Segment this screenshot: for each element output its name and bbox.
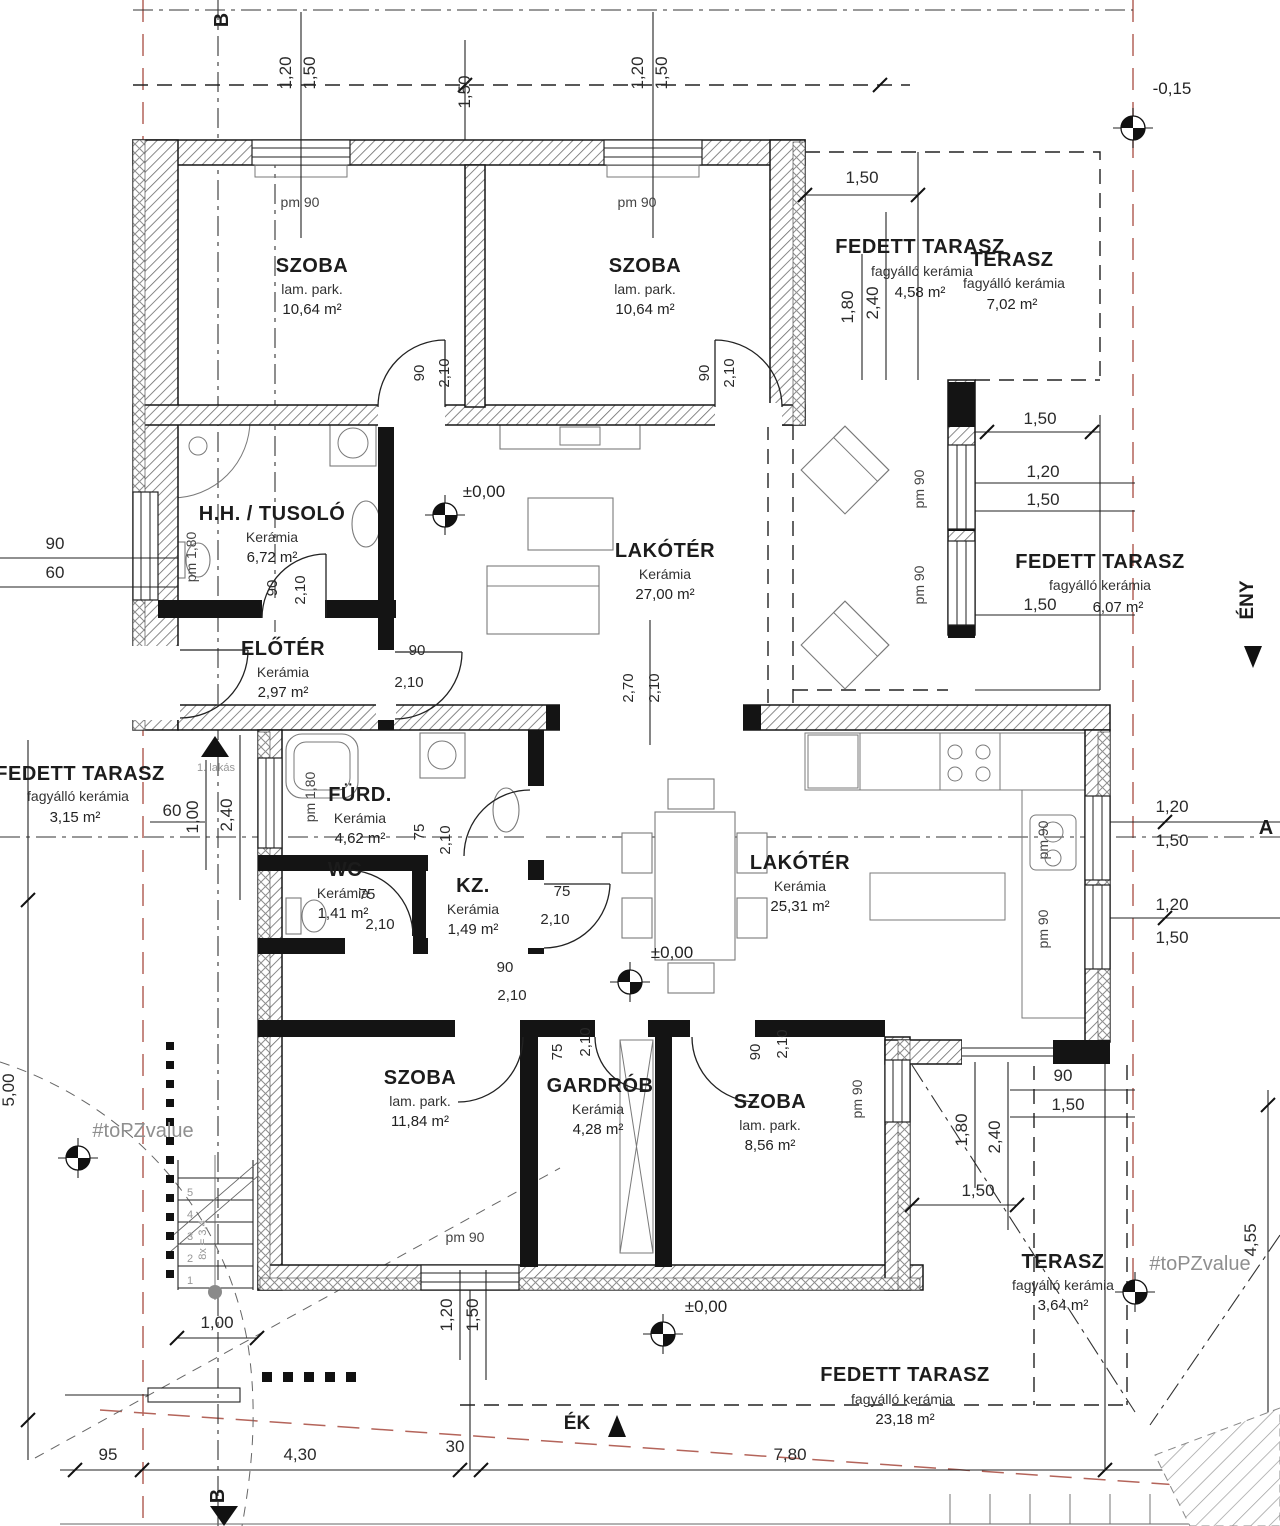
room-material: lam. park.	[281, 281, 342, 297]
room-name: GARDRÓB	[547, 1073, 654, 1097]
window	[258, 758, 282, 848]
survey-marker-left	[58, 1138, 98, 1178]
chair	[622, 898, 652, 938]
room-material: Kerámia	[334, 810, 386, 826]
sofa	[487, 566, 599, 634]
level-text: ±0,00	[651, 943, 693, 962]
stairs: 5 4 3 2 1 8x = 3,4	[65, 1042, 356, 1402]
armchair-2	[801, 601, 889, 689]
dim: 1,50	[1051, 1095, 1084, 1114]
door-dim: 2,10	[365, 916, 394, 933]
room-name: SZOBA	[384, 1067, 457, 1089]
coffee-table	[528, 498, 613, 550]
room-name: WC	[328, 859, 362, 881]
room-name: SZOBA	[276, 255, 349, 277]
room-label-furdo: FÜRD. Kerámia 4,62 m²	[328, 783, 392, 847]
stair-step: 5	[187, 1187, 193, 1199]
wall-bedroom-bottom	[133, 405, 805, 425]
room-area: 25,31 m²	[770, 898, 829, 915]
counter-divisions	[860, 733, 1000, 790]
hob-burner	[976, 745, 990, 759]
door-dim: 90	[411, 365, 428, 382]
watermark-left: #toPZvalue	[92, 1120, 193, 1142]
room-area: 23,18 m²	[875, 1411, 934, 1428]
door-dim: 90	[497, 959, 514, 976]
room-material: lam. park.	[614, 281, 675, 297]
room-label-szoba-1: SZOBA lam. park. 10,64 m²	[276, 255, 349, 318]
window	[1085, 796, 1110, 880]
level-marker-zero-3: ±0,00	[643, 1297, 727, 1354]
room-area: 27,00 m²	[635, 586, 694, 603]
insulation	[260, 1278, 920, 1290]
floor-plan-canvas: 5 4 3 2 1 8x = 3,4	[0, 0, 1280, 1526]
door-dim: 2,10	[540, 911, 569, 928]
door-dim: 90	[264, 580, 281, 597]
chair	[737, 898, 767, 938]
room-label-eloter: ELŐTÉR Kerámia 2,97 m²	[241, 637, 325, 701]
room-name: H.H. / TUSOLÓ	[199, 501, 346, 525]
wardrobe-x	[620, 1040, 653, 1253]
room-material: fagyálló kerámia	[851, 1391, 953, 1407]
level-text: ±0,00	[463, 482, 505, 501]
dim: 60	[163, 801, 182, 820]
door-dim: 75	[411, 824, 428, 841]
wall-bedroom-divider	[465, 165, 485, 407]
compass-ek-label: ÉK	[564, 1412, 591, 1434]
dining-table	[655, 812, 735, 960]
stair-step: 3	[187, 1231, 193, 1243]
room-area: 7,02 m²	[987, 296, 1038, 313]
watermark-right: #toPZvalue	[1149, 1253, 1250, 1275]
dim: 60	[46, 563, 65, 582]
fridge	[808, 735, 858, 788]
room-material: Kerámia	[447, 901, 499, 917]
dim: 1,50	[463, 1298, 482, 1331]
dim: 2,40	[985, 1120, 1004, 1153]
room-label-gardrob: GARDRÓB Kerámia 4,28 m²	[547, 1073, 654, 1138]
dim: 1,80	[838, 290, 857, 323]
section-b-arrow	[210, 1506, 238, 1526]
washer-2	[420, 733, 465, 778]
sill-label: pm 90	[1035, 909, 1051, 948]
washer	[330, 420, 376, 466]
room-material: fagyálló kerámia	[1049, 577, 1151, 593]
dim: 1,50	[1023, 595, 1056, 614]
door-dim: 90	[696, 365, 713, 382]
entrance-arrow-icon	[201, 736, 229, 757]
door-dim: 2,10	[292, 575, 309, 604]
window	[885, 1060, 910, 1122]
room-material: fagyálló kerámia	[27, 788, 129, 804]
dim: 1,00	[200, 1313, 233, 1332]
wall-top	[133, 140, 805, 165]
door-dim: 90	[747, 1044, 764, 1061]
room-area: 4,58 m²	[895, 284, 946, 301]
door-dim: 2,70	[620, 673, 637, 702]
dim: 95	[99, 1445, 118, 1464]
room-label-fedett-tarasz-bottom: FEDETT TARASZ fagyálló kerámia 23,18 m²	[820, 1364, 989, 1428]
stair-start-dot	[208, 1285, 222, 1299]
dim: 1,50	[652, 56, 671, 89]
room-label-terasz-bottom: TERASZ fagyálló kerámia 3,64 m²	[1012, 1251, 1114, 1314]
room-material: lam. park.	[389, 1093, 450, 1109]
chair	[668, 779, 714, 809]
hob-burner	[976, 767, 990, 781]
window	[421, 1265, 519, 1290]
room-name: ELŐTÉR	[241, 637, 325, 660]
dim: 90	[46, 534, 65, 553]
stair-step: 1	[187, 1275, 193, 1287]
dim-line	[912, 1062, 1135, 1230]
dim: 1,20	[437, 1298, 456, 1331]
sill-label: pm 90	[911, 565, 927, 604]
dim: 2,40	[863, 286, 882, 319]
room-material: fagyálló kerámia	[871, 263, 973, 279]
door-dim: 2,10	[437, 825, 454, 854]
sill-label: pm 90	[849, 1079, 865, 1118]
room-material: Kerámia	[572, 1101, 624, 1117]
partition-hh	[378, 425, 394, 620]
survey-marker-right	[1115, 1272, 1155, 1312]
dim: 90	[1054, 1066, 1073, 1085]
kitchen-counter	[805, 733, 1085, 790]
room-label-kz: KZ. Kerámia 1,49 m²	[447, 875, 499, 938]
legend-squares-row	[262, 1372, 356, 1382]
room-name: SZOBA	[734, 1091, 807, 1113]
level-marker-minus-015: -0,15	[1113, 79, 1191, 148]
room-area: 11,84 m²	[391, 1113, 449, 1130]
room-material: Kerámia	[774, 878, 826, 894]
dim: 2,40	[217, 798, 236, 831]
section-b-bottom: B	[207, 1489, 229, 1503]
room-material: fagyálló kerámia	[1012, 1277, 1114, 1293]
room-area: 2,97 m²	[258, 684, 309, 701]
room-area: 4,28 m²	[573, 1121, 624, 1138]
insulation	[133, 140, 145, 730]
room-area: 1,41 m²	[318, 905, 369, 922]
floor-plan: 5 4 3 2 1 8x = 3,4	[0, 0, 1280, 1526]
stair-note: 8x = 3,4	[197, 1220, 209, 1259]
dim: 1,50	[1155, 831, 1188, 850]
compass-eny-label: ÉNY	[1236, 580, 1258, 619]
room-material: lam. park.	[739, 1117, 800, 1133]
room-name: LAKÓTÉR	[615, 538, 715, 562]
door-szoba-3	[458, 1037, 523, 1102]
door-dim: 2,10	[497, 987, 526, 1004]
room-material: fagyálló kerámia	[963, 275, 1065, 291]
sill-label: pm 90	[1035, 820, 1051, 859]
dim: 5,00	[0, 1073, 18, 1106]
door-dim: 2,10	[436, 358, 453, 387]
room-label-szoba-2: SZOBA lam. park. 10,64 m²	[609, 255, 682, 318]
sill-label: pm 1,80	[302, 771, 318, 822]
section-a: A	[1259, 817, 1273, 839]
room-area: 6,07 m²	[1093, 599, 1144, 616]
kitchen-island	[870, 873, 1005, 920]
sill-label: pm 90	[446, 1229, 485, 1245]
dim: 1,20	[628, 56, 647, 89]
pillar	[546, 705, 562, 730]
edge-squares-column	[166, 1042, 174, 1278]
level-text: ±0,00	[685, 1297, 727, 1316]
compass-eny-arrow-icon	[1244, 646, 1262, 668]
room-area: 3,64 m²	[1038, 1297, 1089, 1314]
room-name: FEDETT TARASZ	[820, 1364, 989, 1386]
partition-szoba3-gardrob	[520, 1037, 538, 1267]
sill-label: pm 90	[618, 194, 657, 210]
room-material: Kerámia	[639, 566, 691, 582]
door-dim: 90	[409, 642, 426, 659]
sink	[352, 501, 380, 547]
section-b-top: B	[211, 13, 233, 27]
entrance-label: 1. lakás	[197, 762, 235, 774]
hob-burner	[948, 767, 962, 781]
stair-break-lines	[170, 1162, 258, 1252]
compass-ek-arrow-icon	[608, 1415, 626, 1437]
room-name: FÜRD.	[328, 783, 392, 806]
room-name: SZOBA	[609, 255, 682, 277]
terrace-bottom-outline	[460, 1065, 1127, 1405]
level-marker-zero-1: ±0,00	[425, 482, 505, 535]
stair-treads	[178, 1160, 253, 1290]
room-name: LAKÓTÉR	[750, 850, 850, 874]
dim: 4,55	[1241, 1223, 1260, 1256]
door-dim: 2,10	[774, 1029, 791, 1058]
armchair-1	[801, 426, 889, 514]
partition-gardrob-szoba4	[655, 1037, 672, 1267]
room-area: 10,64 m²	[615, 301, 674, 318]
dim: 7,80	[773, 1445, 806, 1464]
dim-line	[1110, 822, 1280, 918]
garden-wall	[148, 1388, 240, 1402]
chair	[668, 963, 714, 993]
room-material: Kerámia	[257, 664, 309, 680]
wc-tank	[286, 898, 301, 934]
door-dim: 2,10	[577, 1027, 594, 1056]
dim: 1,50	[845, 168, 878, 187]
dim: 1,50	[300, 56, 319, 89]
sill-label: pm 1,80	[183, 531, 199, 582]
room-area: 1,49 m²	[448, 921, 499, 938]
room-material: Kerámia	[246, 529, 298, 545]
room-name: FEDETT TARASZ	[1015, 551, 1184, 573]
dim: 4,30	[283, 1445, 316, 1464]
room-label-szoba-4: SZOBA lam. park. 8,56 m²	[734, 1091, 807, 1154]
level-text: -0,15	[1153, 79, 1192, 98]
hob-burner	[948, 745, 962, 759]
room-name: TERASZ	[971, 249, 1054, 271]
room-label-terasz-top: TERASZ fagyálló kerámia 7,02 m²	[963, 249, 1065, 313]
dim: 1,20	[1155, 895, 1188, 914]
room-area: 4,62 m²	[335, 830, 386, 847]
window	[948, 445, 975, 529]
door-dim: 75	[554, 883, 571, 900]
room-label-szoba-3: SZOBA lam. park. 11,84 m²	[384, 1067, 457, 1130]
sill-label: pm 90	[281, 194, 320, 210]
dim: 1,20	[276, 56, 295, 89]
room-area: 10,64 m²	[282, 301, 341, 318]
room-name: KZ.	[456, 875, 490, 897]
door-dim: 2,10	[646, 673, 663, 702]
window	[948, 541, 975, 625]
dim: 1,50	[961, 1181, 994, 1200]
dim: 1,20	[1155, 797, 1188, 816]
pillar	[1053, 1040, 1110, 1064]
stair-step: 4	[187, 1209, 193, 1221]
door-dim: 2,10	[394, 674, 423, 691]
door-dim: 75	[549, 1044, 566, 1061]
room-area: 6,72 m²	[247, 549, 298, 566]
dim: 1,20	[1026, 462, 1059, 481]
room-label-lakoter-upper: LAKÓTÉR Kerámia 27,00 m²	[615, 538, 715, 603]
insulation	[793, 142, 805, 425]
room-name: TERASZ	[1022, 1251, 1105, 1273]
dim: 30	[446, 1437, 465, 1456]
stair-step: 2	[187, 1253, 193, 1265]
shower	[172, 420, 250, 498]
shower-drain	[189, 437, 207, 455]
pillar	[948, 382, 975, 427]
room-area: 8,56 m²	[745, 1137, 796, 1154]
dim: 1,50	[1026, 490, 1059, 509]
dim: 1,50	[1023, 409, 1056, 428]
room-area: 3,15 m²	[50, 809, 101, 826]
room-name: FEDETT TARASZ	[0, 763, 165, 785]
dim: 1,50	[455, 75, 474, 108]
pillar	[948, 624, 975, 638]
window	[1085, 885, 1110, 969]
window	[133, 492, 158, 600]
neighbor-plot-hatch	[1155, 1408, 1280, 1526]
property-line-bottom	[100, 1410, 1280, 1492]
room-label-hh-tusolo: H.H. / TUSOLÓ Kerámia 6,72 m²	[199, 501, 346, 566]
dim: 1,80	[952, 1113, 971, 1146]
sill-label: pm 90	[911, 469, 927, 508]
pillar	[743, 705, 761, 730]
room-label-fedett-tarasz-left: FEDETT TARASZ fagyálló kerámia 3,15 m²	[0, 763, 165, 826]
chair	[622, 833, 652, 873]
dim: 1,00	[183, 800, 202, 833]
room-material: Kerámia	[317, 885, 369, 901]
dim: 1,50	[1155, 928, 1188, 947]
door-dim: 2,10	[721, 358, 738, 387]
